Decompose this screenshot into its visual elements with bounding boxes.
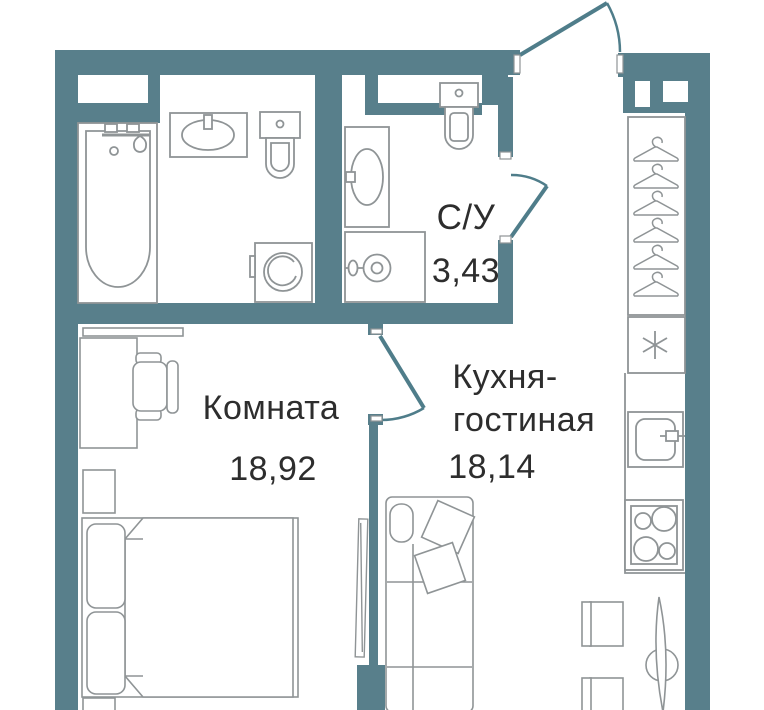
bath-tap-icon	[105, 124, 117, 132]
wall-right-outer	[685, 53, 710, 710]
niche-b	[160, 75, 315, 103]
dining-chair-icon	[582, 678, 623, 710]
dining-chair-icon	[582, 602, 623, 646]
tap-icon	[666, 431, 678, 441]
dining-table-icon	[646, 597, 678, 710]
wc-door	[511, 175, 547, 237]
tap-icon	[346, 172, 355, 182]
niche-a	[78, 75, 148, 103]
blanket	[125, 518, 293, 697]
wall-sanitary-bottom	[55, 303, 513, 324]
armrest	[390, 504, 413, 542]
kitchen-sink-icon	[628, 412, 685, 467]
bath-tap-icon	[127, 124, 139, 132]
burner-icon	[659, 543, 675, 559]
stove-icon	[625, 500, 683, 570]
shower-head-icon	[134, 136, 146, 152]
chair-back	[167, 361, 178, 413]
asterisk-box-icon	[628, 317, 685, 373]
door-swing-icon	[511, 175, 547, 186]
washing-machine-icon	[250, 243, 312, 302]
bedroom-label: Комната	[203, 389, 340, 427]
bathtub-icon	[78, 123, 157, 303]
bedroom-area: 18,92	[229, 450, 317, 488]
water-heater-icon	[345, 232, 425, 302]
threshold	[500, 236, 511, 243]
wc-sink-icon	[345, 127, 389, 227]
wc-area: 3,43	[432, 252, 500, 290]
nightstand-icon	[83, 698, 115, 710]
threshold	[371, 329, 382, 334]
niche-f	[663, 81, 688, 102]
niche-c	[342, 75, 365, 102]
threshold	[514, 55, 520, 73]
pillow	[87, 612, 125, 694]
burner-icon	[652, 507, 676, 531]
threshold	[617, 55, 623, 73]
bath-toilet-icon	[260, 112, 300, 178]
wall-top-band	[55, 50, 520, 75]
wall-wc-left	[315, 75, 342, 317]
wc-toilet-icon	[440, 83, 478, 149]
door-leaf	[520, 3, 607, 55]
kitchen-label-line2: гостиная	[453, 401, 595, 439]
pillow	[87, 524, 125, 608]
threshold	[371, 416, 382, 421]
wall-niche-fill-2	[365, 75, 378, 102]
wall-niche-fill-1	[148, 75, 160, 103]
wall-wc-right-upper	[498, 77, 513, 157]
wall-left-outer	[55, 50, 78, 710]
kitchen-area: 18,14	[448, 448, 536, 486]
wall-niches	[78, 75, 688, 107]
door-leaf	[380, 336, 424, 408]
shelf-icon	[83, 328, 183, 336]
entrance-door	[520, 3, 620, 55]
drain-icon	[110, 147, 118, 155]
wardrobe-icon	[628, 117, 685, 315]
flush-button-icon	[277, 121, 284, 128]
wc-label: С/У	[437, 198, 496, 237]
tap-icon	[204, 115, 212, 129]
chair-seat	[133, 362, 167, 411]
burner-icon	[634, 537, 658, 561]
door-swing-icon	[380, 408, 424, 420]
sofa-icon	[386, 497, 474, 710]
wall-bathtub-top	[55, 103, 160, 123]
burner-icon	[635, 513, 651, 529]
nightstand-icon	[83, 470, 115, 513]
niche-e	[635, 81, 650, 107]
wall-wc-right-lower	[498, 240, 513, 305]
kitchen-label-line1: Кухня-	[452, 358, 557, 396]
tv-icon	[355, 519, 368, 657]
floor-plan: С/У 3,43 Комната 18,92 Кухня- гостиная 1…	[0, 0, 764, 710]
flush-button-icon	[456, 90, 463, 97]
desk-icon	[80, 338, 137, 448]
door-swing-icon	[607, 3, 620, 52]
threshold	[500, 152, 511, 159]
bed-icon	[82, 518, 298, 697]
wall-partition-thin	[369, 425, 378, 665]
bath-sink-icon	[170, 113, 247, 157]
wall-partition-block	[357, 665, 385, 710]
office-chair-icon	[133, 353, 178, 420]
door-leaf	[511, 186, 547, 237]
room-door	[380, 336, 424, 420]
